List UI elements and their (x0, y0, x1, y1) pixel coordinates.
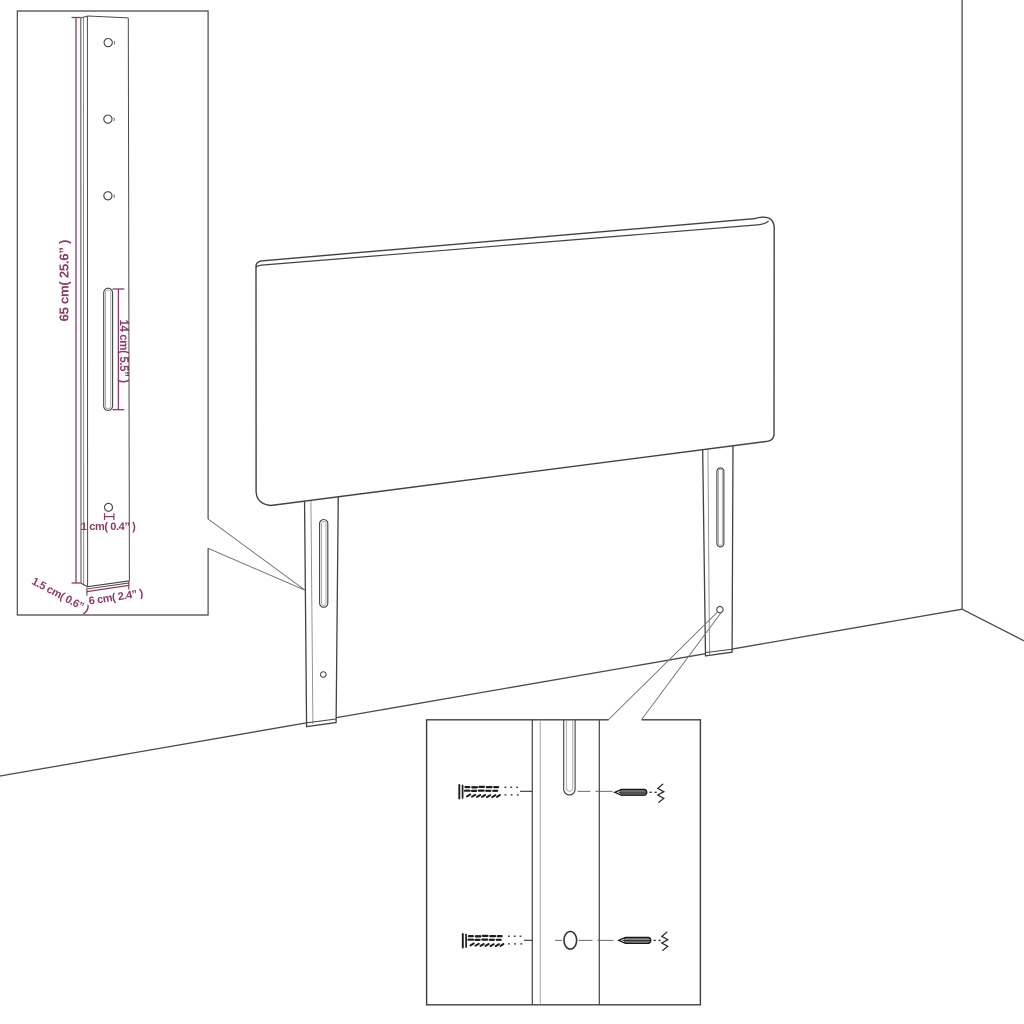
svg-text:65 cm( 25.6” ): 65 cm( 25.6” ) (57, 240, 72, 322)
svg-text:14 cm( 5.5” ): 14 cm( 5.5” ) (117, 320, 129, 384)
svg-text:1 cm( 0.4” ): 1 cm( 0.4” ) (81, 521, 136, 533)
svg-text:1.5 cm( 0.6” ): 1.5 cm( 0.6” ) (30, 576, 92, 616)
